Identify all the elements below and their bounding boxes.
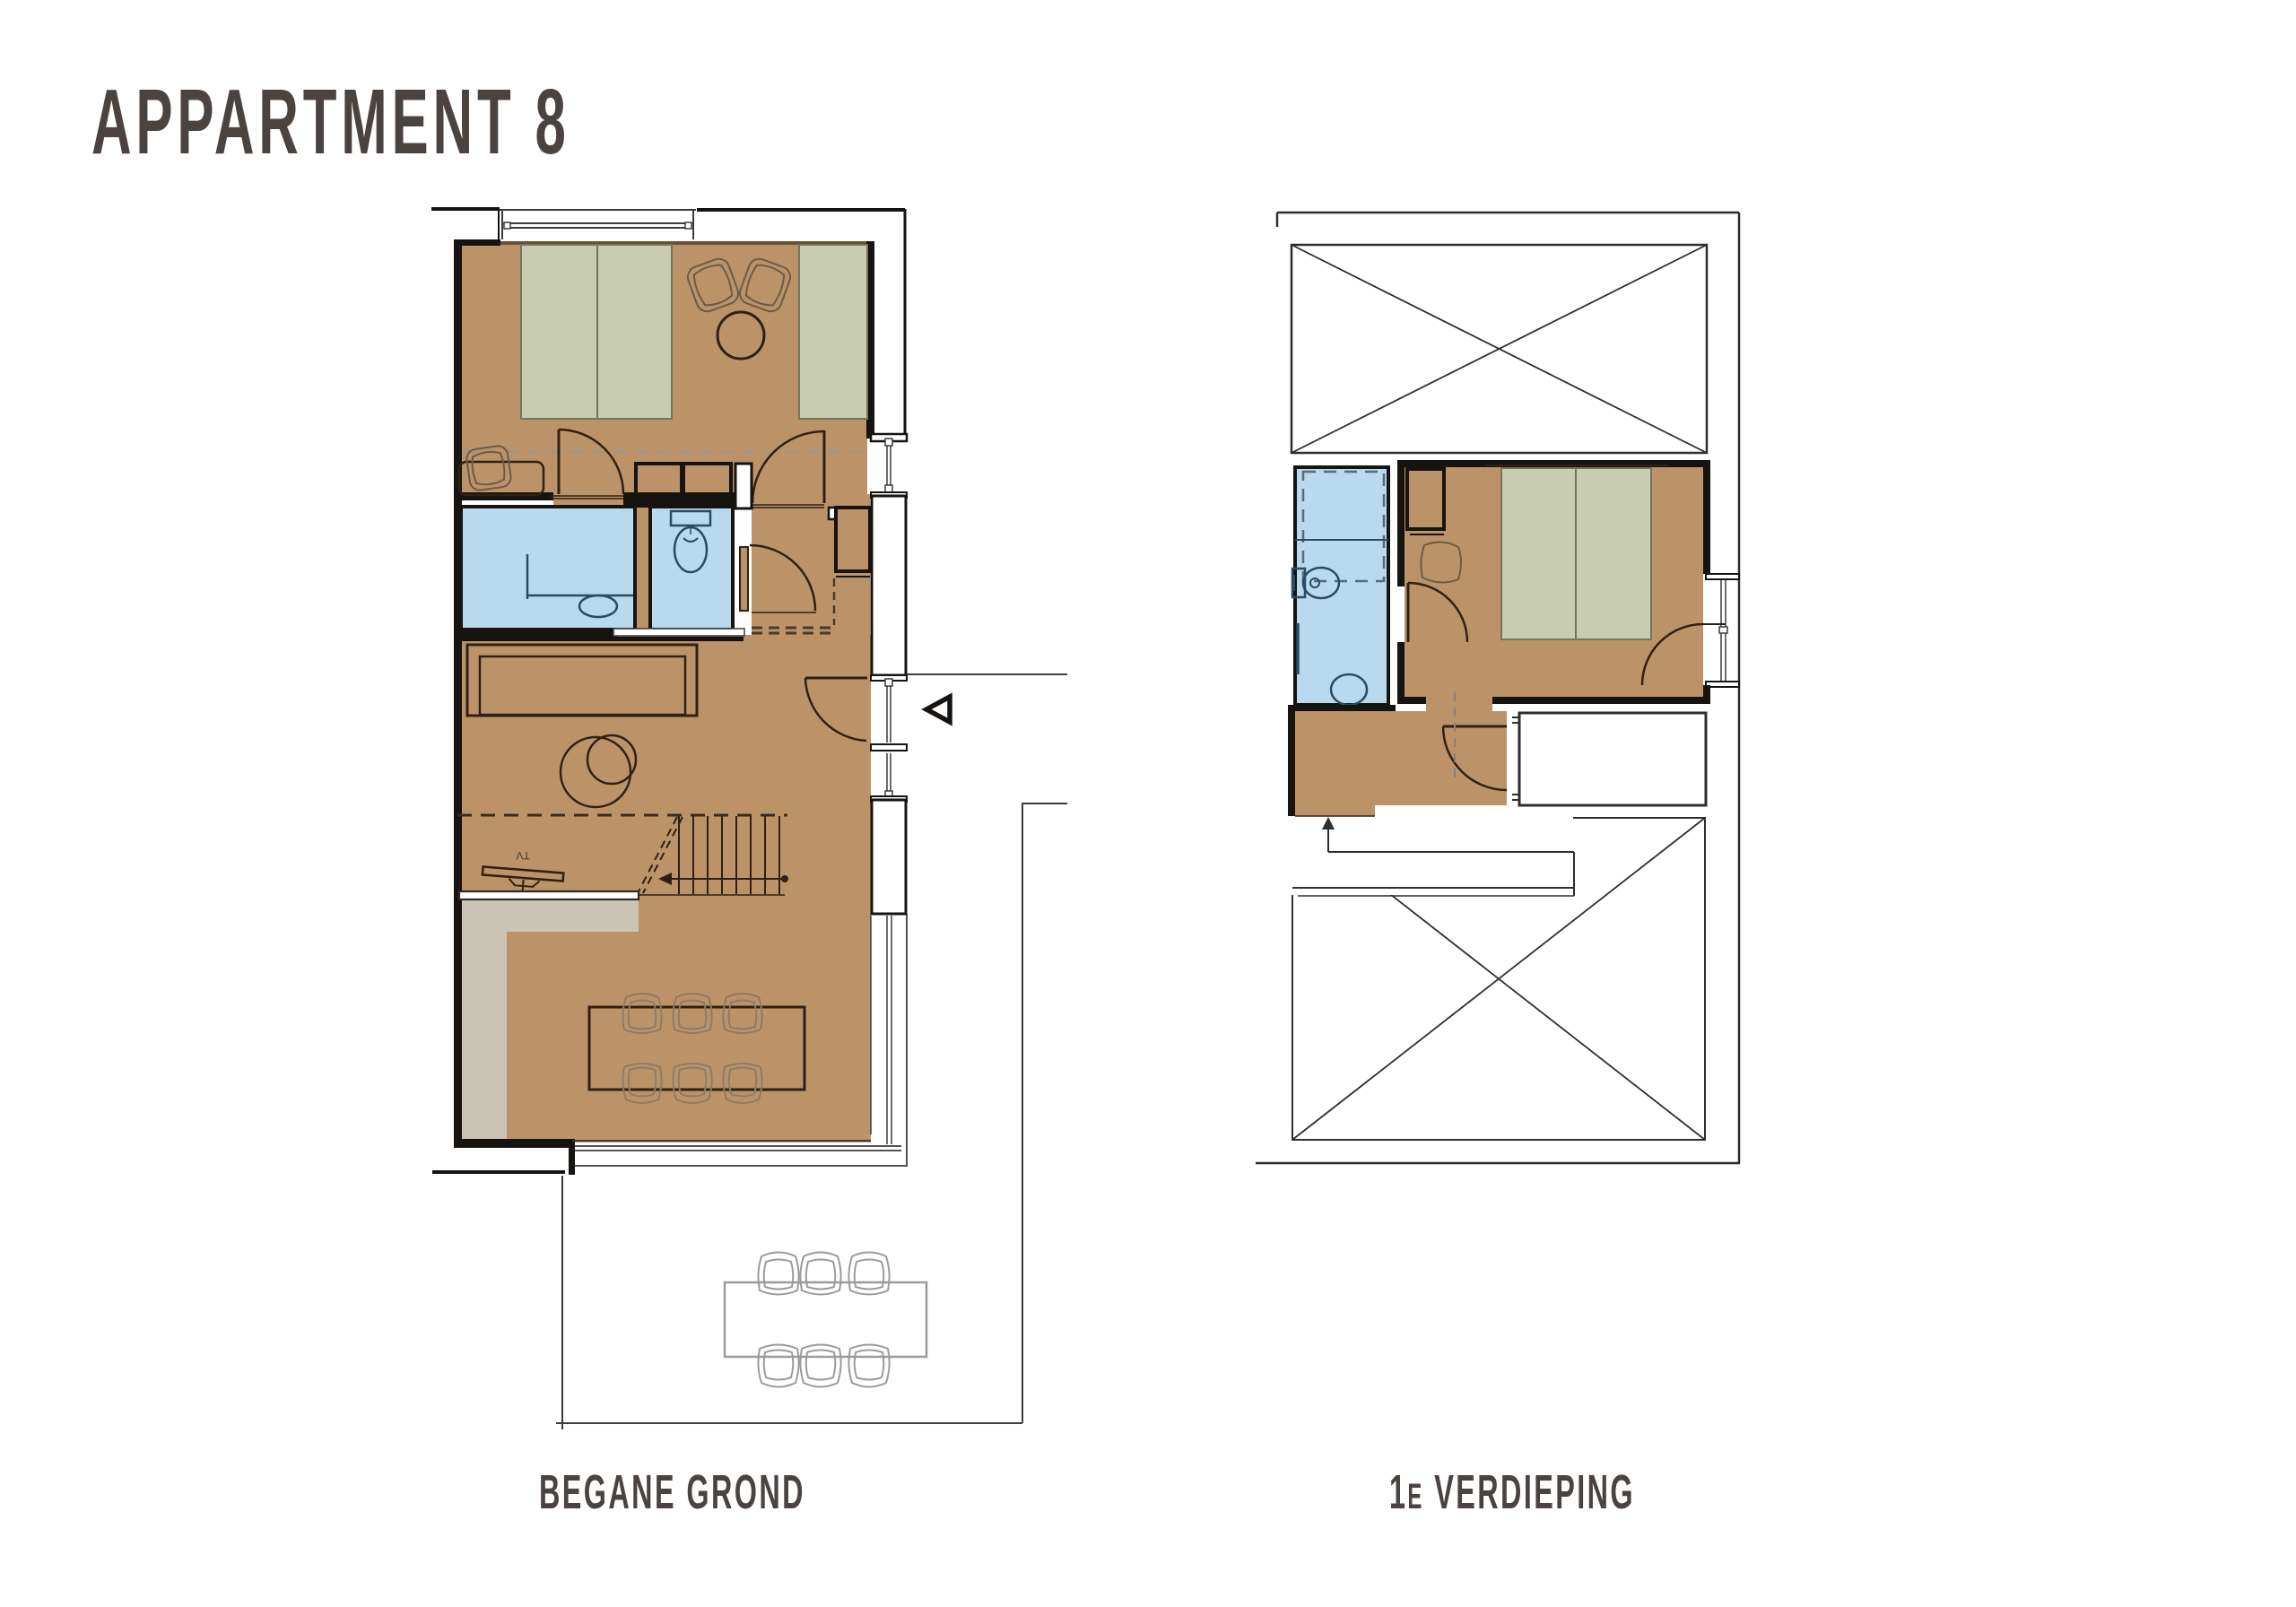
svg-text:APPARTMENT 8: APPARTMENT 8 [91,70,570,173]
svg-text:1E VERDIEPING: 1E VERDIEPING [1389,1466,1635,1519]
svg-text:BEGANE GROND: BEGANE GROND [539,1466,805,1519]
svg-text:TV: TV [516,849,529,862]
